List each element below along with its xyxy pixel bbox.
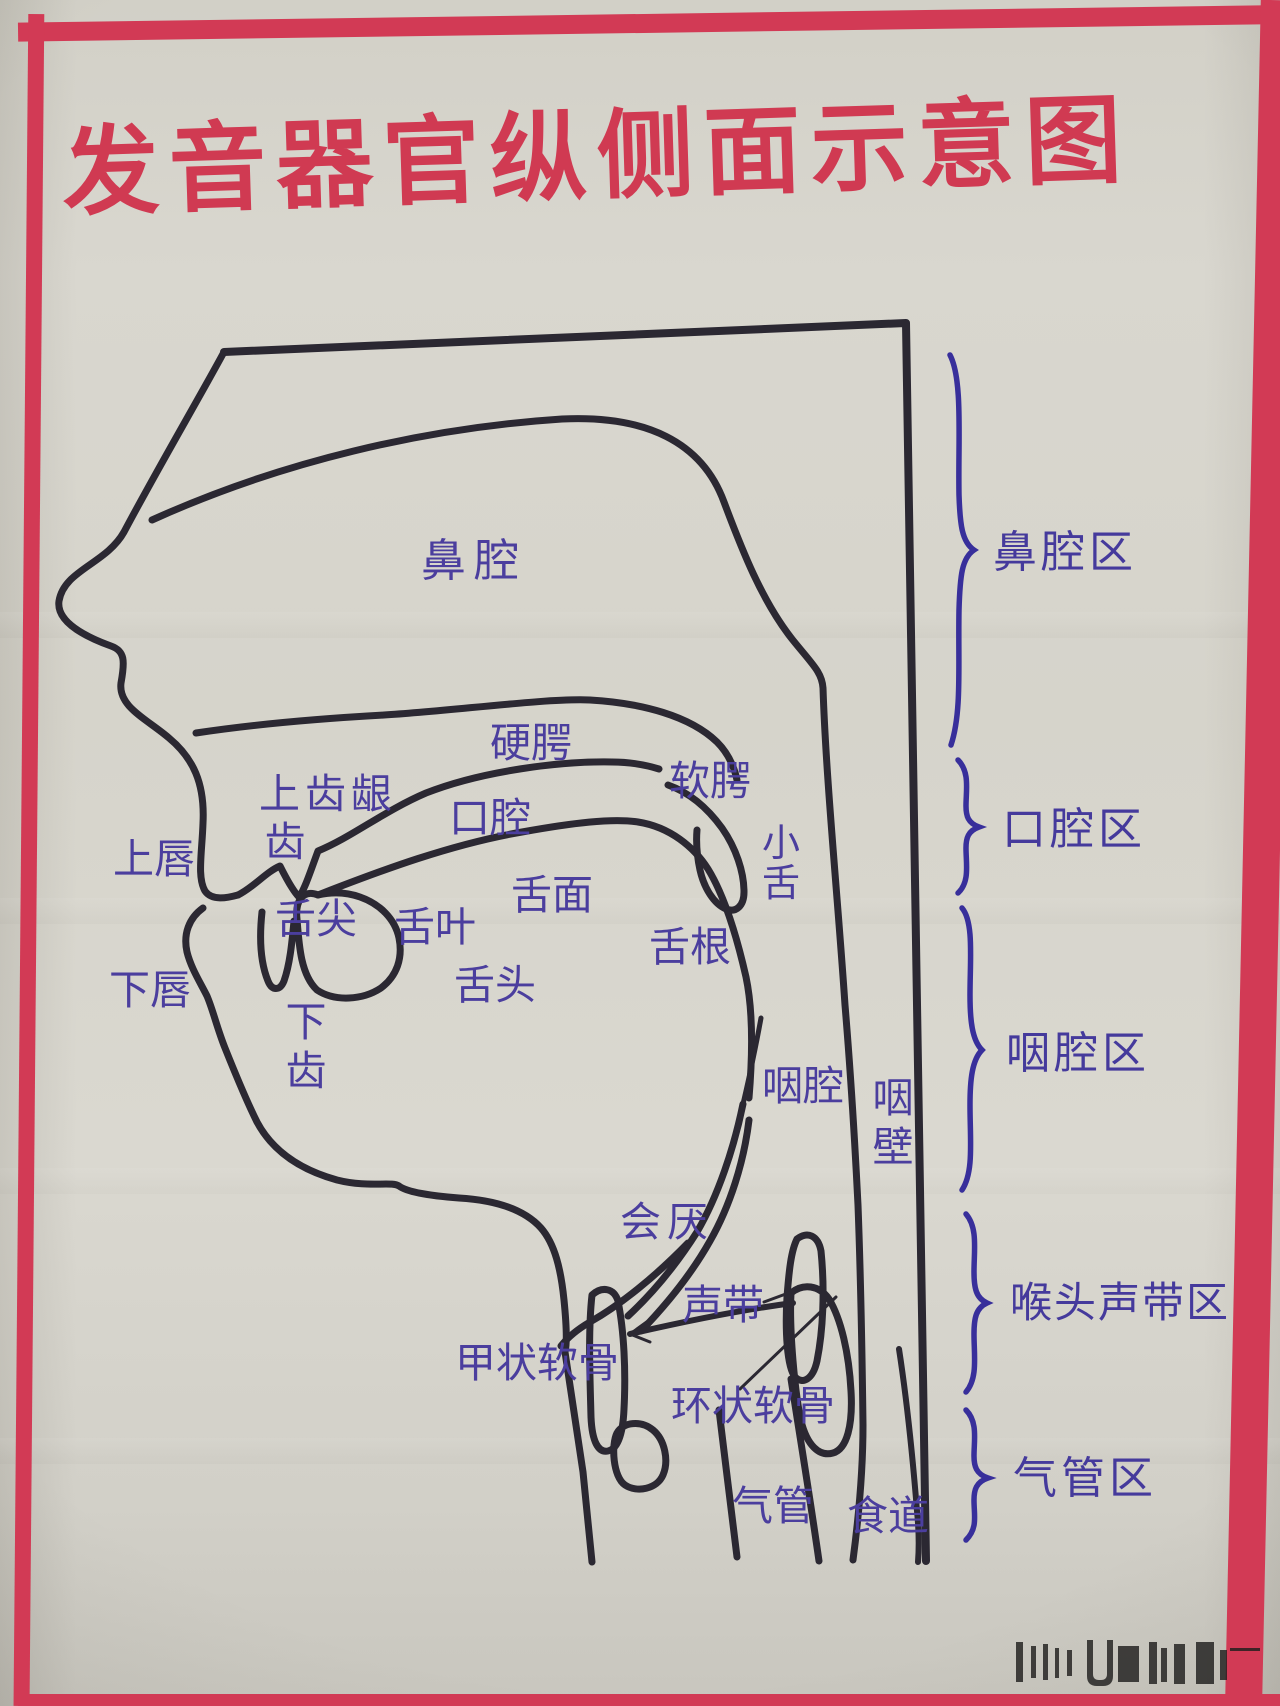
label-upper-teeth: 齿 xyxy=(265,819,306,865)
frame-left xyxy=(14,14,45,1706)
label-uvula: 小舌 xyxy=(762,823,800,905)
label-tongue-surface: 舌面 xyxy=(511,872,593,918)
label-esophagus: 食道 xyxy=(847,1493,929,1539)
label-cricoid-cartilage: 环状软骨 xyxy=(671,1383,835,1429)
poster-title: 发音器官纵侧面示意图 xyxy=(60,85,1133,228)
label-tongue-tip: 舌尖 xyxy=(275,896,357,942)
label-vocal-cords: 声带 xyxy=(682,1282,764,1328)
label-nasal-region: 鼻腔区 xyxy=(993,528,1137,577)
pharyngeal-region-brace xyxy=(962,908,982,1190)
label-oral-cavity: 口腔 xyxy=(449,795,531,841)
larynx-region-brace xyxy=(966,1214,987,1392)
label-oral-region: 口腔区 xyxy=(1002,805,1146,854)
label-upper-lip: 上唇 xyxy=(113,836,195,882)
label-lower-lip: 下唇 xyxy=(109,967,191,1013)
poster-photo: { "poster": { "title": "发音器官纵侧面示意图", "co… xyxy=(0,0,1280,1706)
label-epiglottis: 会厌 xyxy=(620,1199,714,1245)
frame-top xyxy=(18,5,1268,41)
label-pharyngeal-cavity: 咽腔 xyxy=(762,1063,844,1109)
nasal-region-brace xyxy=(950,355,974,745)
label-trachea-region: 气管区 xyxy=(1013,1454,1157,1503)
trachea-region-brace xyxy=(966,1410,988,1540)
label-tongue-root: 舌根 xyxy=(649,924,731,970)
label-pharyngeal-wall: 咽壁 xyxy=(873,1075,914,1170)
anatomy-labels: 鼻腔 硬腭 软腭 上齿龈 齿 上唇 口腔 小舌 舌尖 舌叶 舌面 舌根 舌头 下… xyxy=(109,535,929,1539)
print-through-marks xyxy=(1016,1640,1260,1686)
anatomy-diagram: 发音器官纵侧面示意图 鼻腔 硬 xyxy=(0,0,1280,1706)
label-soft-palate: 软腭 xyxy=(669,758,751,804)
label-upper-gum: 上齿龈 xyxy=(259,771,397,817)
vocal-cords-leader-line xyxy=(764,1288,802,1302)
label-tongue: 舌头 xyxy=(454,962,536,1008)
label-nasal-cavity: 鼻腔 xyxy=(421,535,527,586)
label-trachea: 气管 xyxy=(732,1483,814,1529)
label-tongue-blade: 舌叶 xyxy=(394,904,476,950)
region-braces xyxy=(950,355,988,1540)
label-hard-palate: 硬腭 xyxy=(490,720,572,766)
frame-right xyxy=(1225,0,1280,1706)
face-profile-path xyxy=(59,352,238,898)
label-pharyngeal-region: 咽腔区 xyxy=(1006,1029,1150,1078)
label-lower-teeth: 下齿 xyxy=(286,999,327,1094)
label-thyroid-cartilage: 甲状软骨 xyxy=(455,1340,619,1386)
frame-bottom xyxy=(18,1694,1280,1706)
region-labels: 鼻腔区 口腔区 咽腔区 喉头声带区 气管区 xyxy=(993,528,1230,1503)
label-larynx-vocal-region: 喉头声带区 xyxy=(1010,1279,1230,1326)
oral-region-brace xyxy=(958,760,979,893)
